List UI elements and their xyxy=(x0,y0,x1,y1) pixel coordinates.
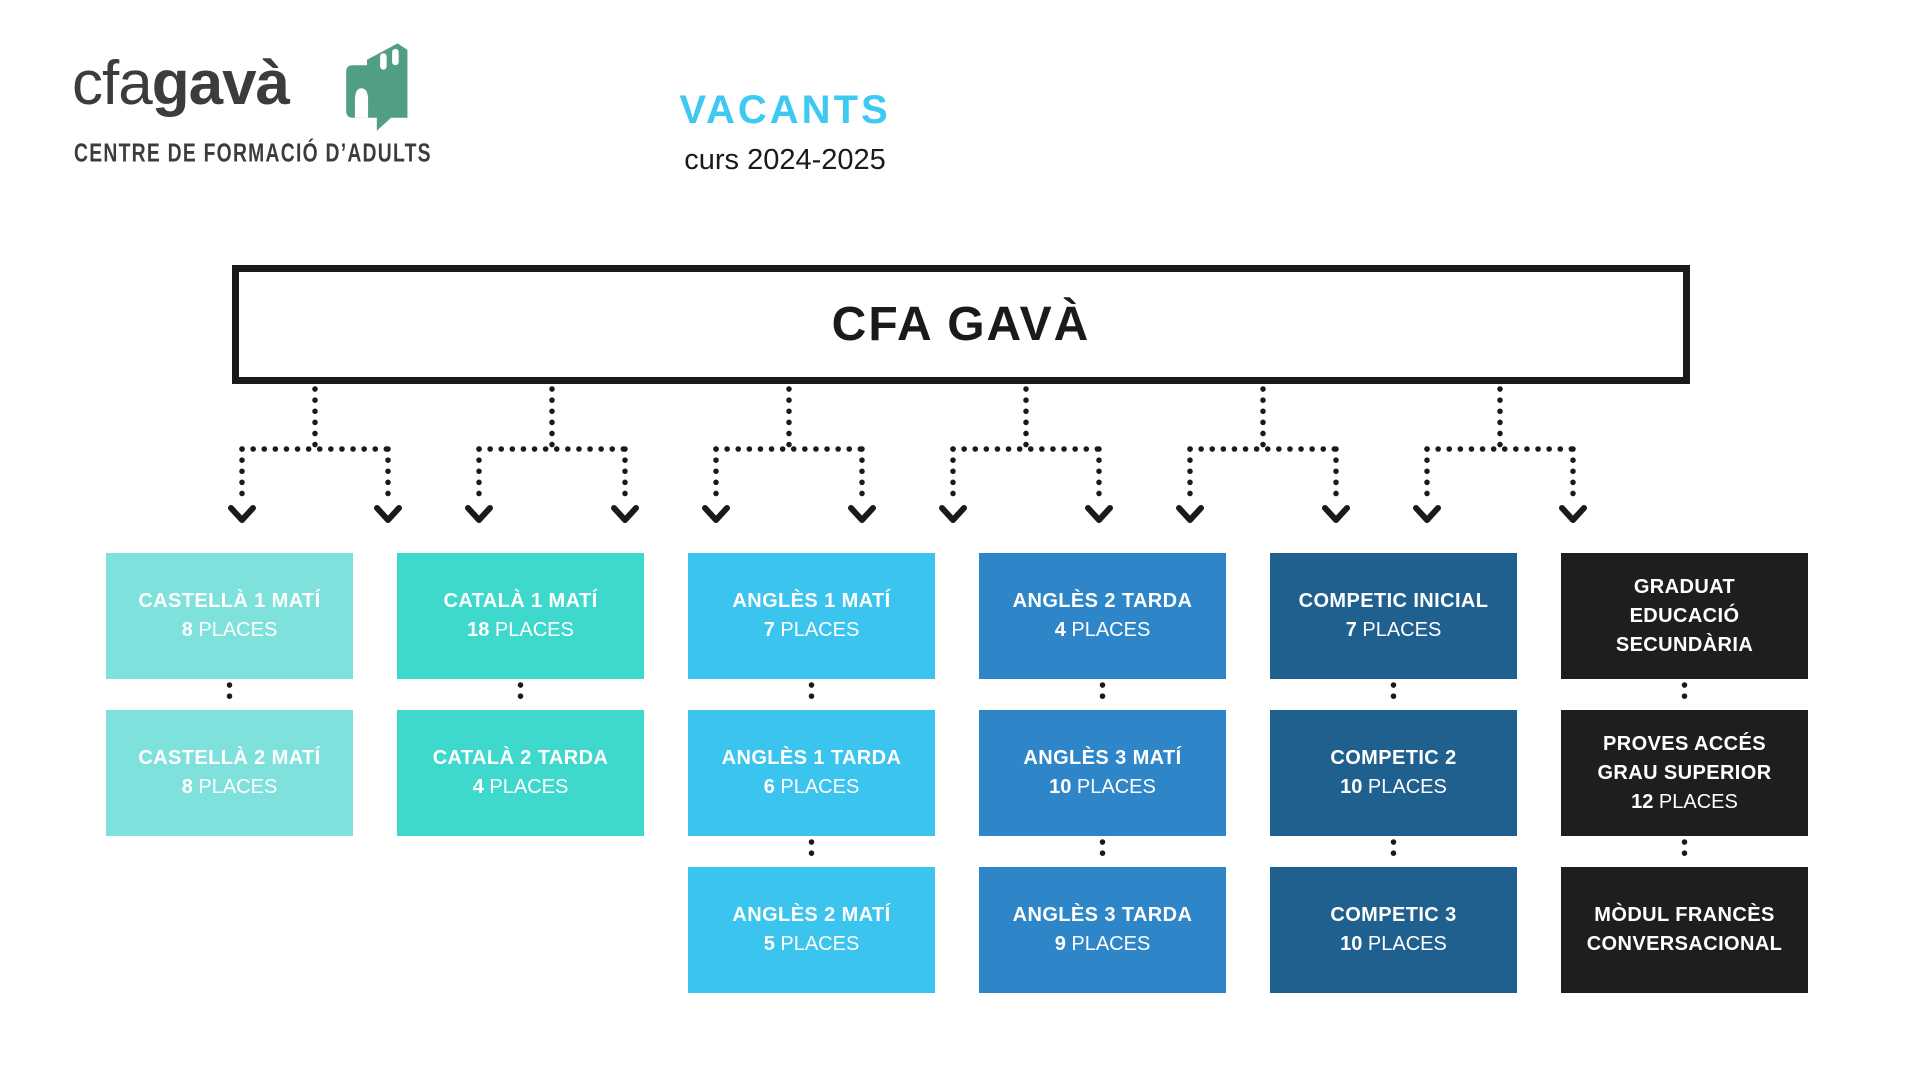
course-title: ANGLÈS 2 MATÍ xyxy=(732,901,890,930)
course-places: 10 PLACES xyxy=(1340,773,1447,802)
course-box-angles-mati-2: ANGLÈS 1 TARDA6 PLACES xyxy=(688,710,935,836)
course-box-angles-mati-1: ANGLÈS 1 MATÍ7 PLACES xyxy=(688,553,935,679)
course-box-graduat-3: MÒDUL FRANCÈSCONVERSACIONAL xyxy=(1561,867,1808,993)
course-title: ANGLÈS 1 TARDA xyxy=(722,744,902,773)
arrow-down-icon xyxy=(705,508,727,520)
course-places: 4 PLACES xyxy=(1055,616,1151,645)
course-places: 18 PLACES xyxy=(467,616,574,645)
course-box-competic-1: COMPETIC INICIAL7 PLACES xyxy=(1270,553,1517,679)
arrow-down-icon xyxy=(1179,508,1201,520)
logo-text-gava: gavà xyxy=(152,49,289,118)
arrow-down-icon xyxy=(468,508,490,520)
course-places: 8 PLACES xyxy=(182,773,278,802)
course-title: CASTELLÀ 2 MATÍ xyxy=(138,744,320,773)
logo-wordmark: cfagavà xyxy=(72,48,289,119)
course-title: ANGLÈS 3 TARDA xyxy=(1013,901,1193,930)
root-box-label: CFA GAVÀ xyxy=(832,297,1091,352)
course-box-competic-3: COMPETIC 310 PLACES xyxy=(1270,867,1517,993)
arrow-down-icon xyxy=(1562,508,1584,520)
course-box-angles-tarda-2: ANGLÈS 3 MATÍ10 PLACES xyxy=(979,710,1226,836)
course-places: 7 PLACES xyxy=(1346,616,1442,645)
course-places: 7 PLACES xyxy=(764,616,860,645)
logo-text-cfa: cfa xyxy=(72,49,152,118)
course-box-angles-tarda-1: ANGLÈS 2 TARDA4 PLACES xyxy=(979,553,1226,679)
root-box-cfa-gava: CFA GAVÀ xyxy=(232,265,1690,384)
course-title: CASTELLÀ 1 MATÍ xyxy=(138,587,320,616)
arrow-down-icon xyxy=(1416,508,1438,520)
vacants-infographic: cfagavà CENTRE DE FORMACIÓ D’ADULTS VACA… xyxy=(0,0,1920,1080)
course-box-competic-2: COMPETIC 210 PLACES xyxy=(1270,710,1517,836)
course-box-graduat-2: PROVES ACCÉSGRAU SUPERIOR12 PLACES xyxy=(1561,710,1808,836)
course-title: ANGLÈS 3 MATÍ xyxy=(1023,744,1181,773)
course-title: MÒDUL FRANCÈSCONVERSACIONAL xyxy=(1587,901,1783,959)
page-title: VACANTS xyxy=(679,88,890,133)
arrow-down-icon xyxy=(377,508,399,520)
course-title: COMPETIC 2 xyxy=(1330,744,1456,773)
course-places: 9 PLACES xyxy=(1055,930,1151,959)
arrow-down-icon xyxy=(942,508,964,520)
course-title: PROVES ACCÉSGRAU SUPERIOR xyxy=(1597,730,1771,788)
course-places: 10 PLACES xyxy=(1340,930,1447,959)
course-title: ANGLÈS 2 TARDA xyxy=(1013,587,1193,616)
arrow-down-icon xyxy=(614,508,636,520)
arrow-down-icon xyxy=(1088,508,1110,520)
arrow-down-icon xyxy=(231,508,253,520)
school-building-speech-bubble-icon xyxy=(344,38,414,134)
course-title: COMPETIC 3 xyxy=(1330,901,1456,930)
page-subtitle: curs 2024-2025 xyxy=(684,144,886,177)
course-places: 8 PLACES xyxy=(182,616,278,645)
course-box-catala-2: CATALÀ 2 TARDA4 PLACES xyxy=(397,710,644,836)
course-box-castella-1: CASTELLÀ 1 MATÍ8 PLACES xyxy=(106,553,353,679)
course-places: 12 PLACES xyxy=(1631,788,1738,817)
logo-tagline: CENTRE DE FORMACIÓ D’ADULTS xyxy=(74,138,432,168)
course-title: CATALÀ 2 TARDA xyxy=(433,744,609,773)
course-places: 6 PLACES xyxy=(764,773,860,802)
course-box-angles-tarda-3: ANGLÈS 3 TARDA9 PLACES xyxy=(979,867,1226,993)
course-box-graduat-1: GRADUATEDUCACIÓSECUNDÀRIA xyxy=(1561,553,1808,679)
arrow-down-icon xyxy=(1325,508,1347,520)
course-title: COMPETIC INICIAL xyxy=(1299,587,1489,616)
course-box-castella-2: CASTELLÀ 2 MATÍ8 PLACES xyxy=(106,710,353,836)
cfa-gava-logo: cfagavà CENTRE DE FORMACIÓ D’ADULTS xyxy=(72,30,492,180)
course-places: 10 PLACES xyxy=(1049,773,1156,802)
course-title: CATALÀ 1 MATÍ xyxy=(443,587,597,616)
arrow-down-icon xyxy=(851,508,873,520)
course-places: 4 PLACES xyxy=(473,773,569,802)
course-places: 5 PLACES xyxy=(764,930,860,959)
course-title: GRADUATEDUCACIÓSECUNDÀRIA xyxy=(1616,573,1753,660)
course-box-angles-mati-3: ANGLÈS 2 MATÍ5 PLACES xyxy=(688,867,935,993)
course-box-catala-1: CATALÀ 1 MATÍ18 PLACES xyxy=(397,553,644,679)
course-title: ANGLÈS 1 MATÍ xyxy=(732,587,890,616)
